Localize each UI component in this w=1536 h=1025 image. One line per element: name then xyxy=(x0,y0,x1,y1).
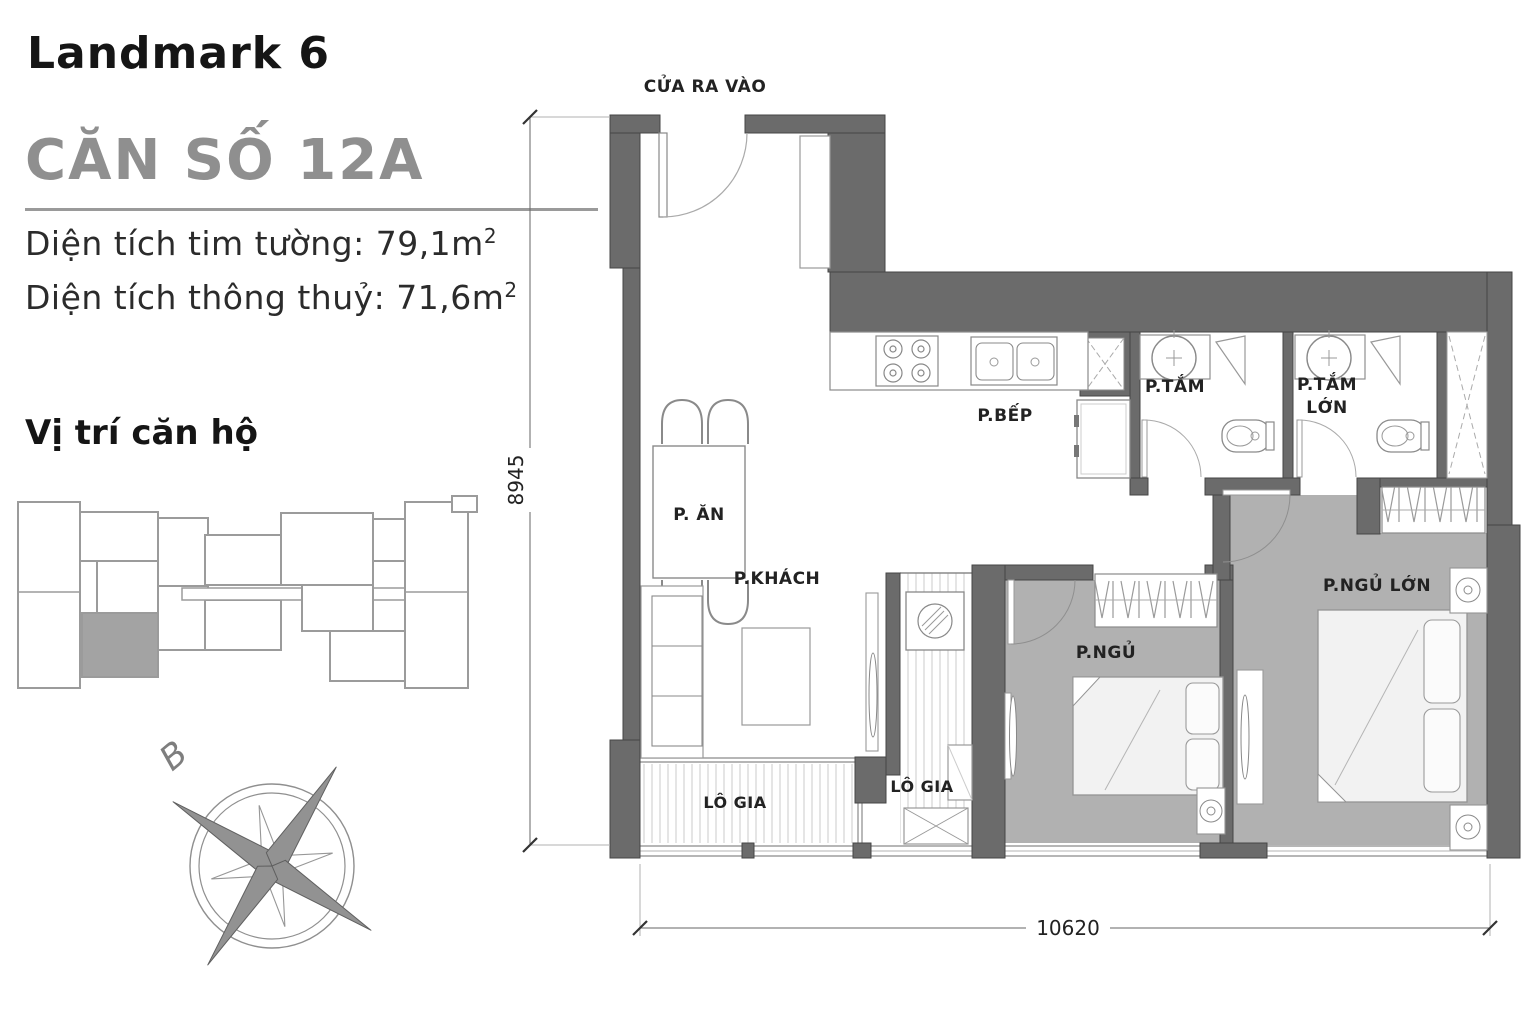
pillow-icon xyxy=(1186,739,1219,790)
entry-closet xyxy=(800,136,830,268)
room-label-dining: P. ĂN xyxy=(673,503,725,525)
room-label-bedroom-large: P.NGỦ LỚN xyxy=(1323,572,1431,596)
kitchen xyxy=(830,332,1130,478)
entry-door xyxy=(659,133,830,268)
coffee-table xyxy=(742,628,810,725)
compass-major-points xyxy=(173,767,371,965)
pillow-icon xyxy=(1186,683,1219,734)
tv-icon xyxy=(869,653,877,737)
dimension-height: 8945 xyxy=(504,455,528,506)
compass-rose: B xyxy=(152,733,371,965)
pillow-icon xyxy=(1424,620,1460,703)
entry-door-swing xyxy=(663,133,747,217)
dimension-vertical: 8945 xyxy=(504,110,610,852)
bedroom-door-leaf xyxy=(1008,580,1014,644)
unit-locator-plan xyxy=(18,496,477,688)
tv-icon xyxy=(1241,695,1249,779)
living-room xyxy=(641,586,878,758)
entrance-label: CỬA RA VÀO xyxy=(644,73,767,97)
dimension-horizontal: 10620 xyxy=(633,864,1497,940)
floor-plan: CỬA RA VÀO P. ĂN P.KHÁCH P.BẾP P.TẮM P.T… xyxy=(0,0,1536,1025)
dimension-width: 10620 xyxy=(1036,916,1100,940)
room-label-kitchen: P.BẾP xyxy=(977,402,1032,426)
chair-icon xyxy=(708,400,748,444)
compass-north-label: B xyxy=(152,733,196,779)
room-label-loggia-1: LÔ GIA xyxy=(703,793,766,812)
apartment-plan: CỬA RA VÀO P. ĂN P.KHÁCH P.BẾP P.TẮM P.T… xyxy=(504,73,1520,940)
bathroom-small xyxy=(1140,330,1274,477)
window-band xyxy=(640,846,1487,856)
room-label-loggia-2: LÔ GIA xyxy=(890,777,953,796)
locator-highlight-unit xyxy=(82,613,158,677)
nightstand-icon xyxy=(1197,788,1225,834)
sink-basin-right xyxy=(1017,343,1054,380)
room-label-living: P.KHÁCH xyxy=(734,567,821,589)
floorplan-page: Landmark 6 CĂN SỐ 12A Diện tích tim tườn… xyxy=(0,0,1536,1025)
refrigerator-icon xyxy=(1077,400,1130,478)
room-label-bedroom: P.NGỦ xyxy=(1076,639,1136,663)
pillow-icon xyxy=(1424,709,1460,792)
bedroom-door-leaf xyxy=(1223,490,1290,495)
entry-door-leaf xyxy=(659,133,667,217)
tv-icon xyxy=(1010,696,1017,776)
room-label-bathroom: P.TẮM xyxy=(1145,373,1205,397)
sink-basin-left xyxy=(976,343,1013,380)
room-label-bathroom-large-1: P.TẮM xyxy=(1297,371,1357,395)
chair-icon xyxy=(662,400,702,444)
room-label-bathroom-large-2: LỚN xyxy=(1306,396,1347,418)
